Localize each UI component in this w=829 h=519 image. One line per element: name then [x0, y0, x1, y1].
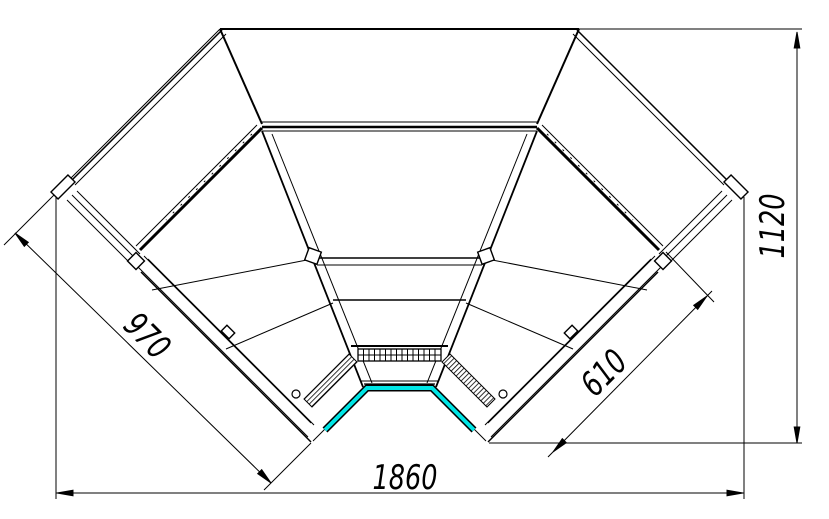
- right-rail-bump: [564, 325, 577, 338]
- left-hatch-strip: [304, 354, 357, 407]
- bumper-accent-band: [325, 388, 474, 430]
- left-wing: [67, 30, 359, 442]
- dim-label-610: 610: [573, 342, 635, 404]
- arrowhead: [258, 470, 271, 483]
- arrowhead: [794, 427, 800, 443]
- dim-label-1120: 1120: [753, 194, 793, 259]
- right-leg-circle: [499, 390, 507, 398]
- canopy: [220, 29, 579, 131]
- left-rail-bump: [221, 325, 234, 338]
- technical-drawing-page: 970 610 1120 1860: [0, 0, 829, 519]
- arrowhead: [57, 490, 73, 496]
- arrowhead: [727, 490, 743, 496]
- arrowhead: [553, 439, 566, 452]
- post-caps-and-blocks: [51, 175, 748, 339]
- dim-label-1860: 1860: [373, 458, 438, 498]
- left-mid-block: [128, 253, 145, 270]
- dimension-1120: [794, 32, 800, 443]
- ventilation-grille: [351, 346, 448, 361]
- left-end-cap: [51, 175, 75, 199]
- corner-case-drawing: 970 610 1120 1860: [0, 0, 829, 519]
- arrowhead: [694, 296, 707, 309]
- arrowhead: [794, 32, 800, 48]
- right-hatch-strip: [442, 354, 495, 407]
- dim-label-970: 970: [115, 305, 177, 367]
- arrowhead: [15, 233, 28, 246]
- extension-lines: [4, 29, 802, 499]
- right-end-cap: [724, 175, 748, 199]
- front-bumper: [325, 388, 474, 430]
- left-leg-circle: [292, 390, 300, 398]
